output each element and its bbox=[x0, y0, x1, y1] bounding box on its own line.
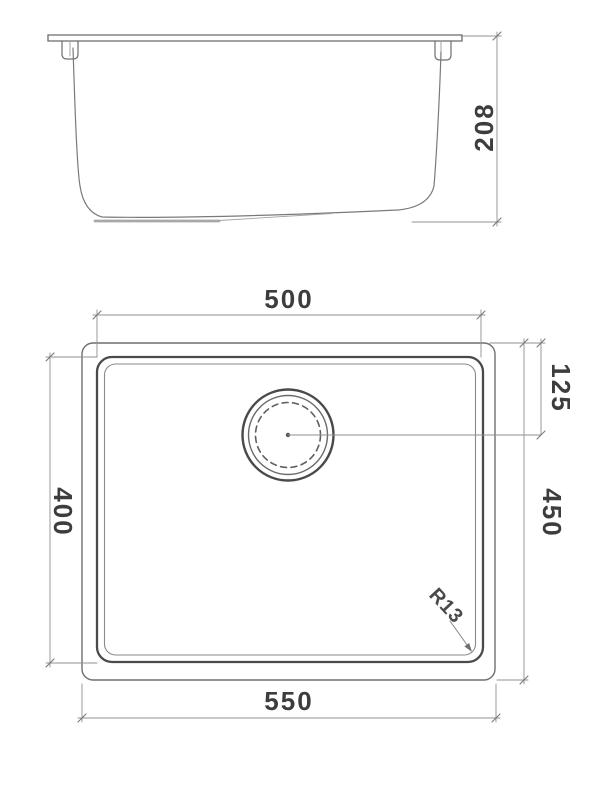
dim-label-500-bowl-width: 500 bbox=[264, 286, 313, 312]
sink-drawing-svg bbox=[0, 0, 606, 800]
bowl-outer-rect bbox=[97, 357, 483, 662]
dim-label-400-bowl-depth: 400 bbox=[50, 487, 76, 536]
side-elevation-view bbox=[48, 32, 501, 226]
sink-rim-profile bbox=[48, 35, 462, 41]
dim-label-550-overall-width: 550 bbox=[264, 688, 313, 714]
dim-500-lines bbox=[93, 310, 485, 357]
technical-drawing-sheet: 208 500 125 400 450 R13 550 bbox=[0, 0, 606, 800]
dim-label-208-height: 208 bbox=[471, 102, 497, 151]
dim-125-lines bbox=[490, 339, 545, 439]
mounting-clip-right bbox=[435, 41, 451, 60]
radius-leader-arrowhead bbox=[464, 643, 472, 652]
plan-view bbox=[46, 310, 545, 722]
drain bbox=[243, 390, 542, 481]
outer-rim-rect bbox=[82, 343, 495, 680]
sink-body-profile bbox=[73, 48, 441, 217]
dim-450-lines bbox=[497, 339, 528, 684]
dim-label-125-drain-offset: 125 bbox=[548, 363, 574, 412]
bowl-inner-rect bbox=[105, 364, 476, 655]
dim-label-450-overall-depth: 450 bbox=[539, 488, 565, 537]
